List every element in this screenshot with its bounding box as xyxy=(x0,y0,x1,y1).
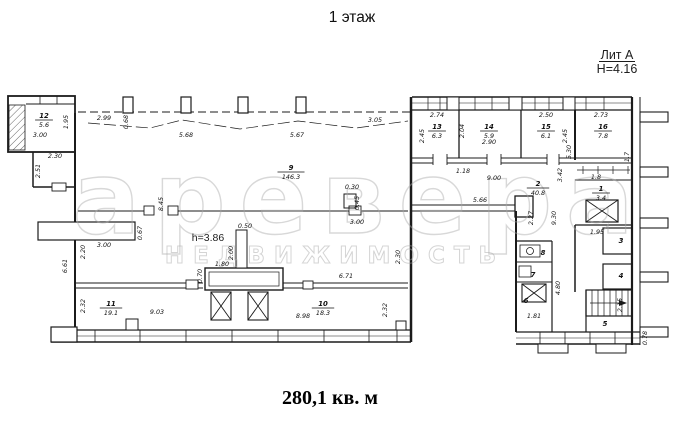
dimension-label: 9.00 xyxy=(487,174,501,182)
vestibule xyxy=(205,268,283,290)
dimension-label: 2.20 xyxy=(79,245,87,259)
room-number: 3 xyxy=(619,237,624,245)
room-number: 9 xyxy=(289,164,294,172)
page-title: 1 этаж xyxy=(329,9,376,26)
dimension-label: 3.05 xyxy=(368,116,382,124)
dimension-label: 1.8 xyxy=(591,173,601,181)
room-area: 40.8 xyxy=(531,189,545,197)
vent-shaft xyxy=(248,292,268,320)
room-4-walls xyxy=(603,264,632,289)
vent-shaft xyxy=(211,292,231,320)
dimension-label: 0.67 xyxy=(136,226,144,240)
room-area: 146.3 xyxy=(282,173,300,181)
dimension-label: 2.04 xyxy=(458,124,466,138)
dimension-label: 2.15 xyxy=(616,298,624,312)
dimension-label: 3.42 xyxy=(556,168,564,182)
room-area: 6.1 xyxy=(541,132,551,140)
dimension-label: 3.00 xyxy=(33,131,47,139)
room-area: 5.9 xyxy=(484,132,494,140)
dimension-label: 2.00 xyxy=(227,246,235,260)
dimension-label: 2.74 xyxy=(430,111,444,119)
room-area: 19.1 xyxy=(104,309,118,317)
dimension-label: 6.71 xyxy=(339,272,353,280)
dimension-label: 0.50 xyxy=(238,222,252,230)
dimension-label: 2.73 xyxy=(594,111,608,119)
dimension-label: 1.95 xyxy=(62,115,70,129)
overhang-dashed-line xyxy=(88,120,408,129)
total-area-label: 280,1 кв. м xyxy=(282,387,378,409)
dimension-label: 8.98 xyxy=(296,312,310,320)
dimension-label: 1.81 xyxy=(527,312,541,320)
room-area: 18.3 xyxy=(316,309,330,317)
dimension-label: 2.32 xyxy=(381,303,389,317)
dimension-label: 5.66 xyxy=(473,196,487,204)
column xyxy=(238,97,248,113)
column xyxy=(123,97,133,113)
entrance-step xyxy=(596,344,626,353)
dimension-label: 6.61 xyxy=(61,259,69,273)
dimension-label: 1.95 xyxy=(590,228,604,236)
dimension-label: 2.32 xyxy=(79,299,87,313)
dimension-label: 0.70 xyxy=(196,269,204,283)
dimension-label: 5.30 xyxy=(565,145,573,159)
room-number: 10 xyxy=(318,300,328,308)
ceiling-height-note: h=3.86 xyxy=(192,232,225,244)
dimension-label: 2.30 xyxy=(394,250,402,264)
dimension-label: 2.30 xyxy=(48,152,62,160)
dimension-label: 3.00 xyxy=(97,241,111,249)
dimension-label: 2.45 xyxy=(561,129,569,143)
dimension-label: 9.30 xyxy=(550,211,558,225)
window-band-south-right xyxy=(516,332,640,353)
room-area: 7.8 xyxy=(598,132,608,140)
room-area: 5.6 xyxy=(39,121,49,129)
dimension-label: 1.7 xyxy=(623,152,631,162)
pilaster xyxy=(640,112,668,122)
dimension-label: 4.80 xyxy=(554,281,562,295)
room-number: 14 xyxy=(484,123,494,131)
dimension-label: 2.51 xyxy=(34,164,42,178)
storey-height-label: H=4.16 xyxy=(597,62,638,76)
room-number: 5 xyxy=(603,320,608,328)
dimension-label: 5.68 xyxy=(179,131,193,139)
room-number: 11 xyxy=(106,300,116,308)
floor-plan: аревера НЕДВИЖИМОСТЬ 1.953.002.990.685.6… xyxy=(0,0,680,424)
room-number: 13 xyxy=(432,123,442,131)
column xyxy=(296,97,306,113)
liter-label: Лит А xyxy=(601,48,634,62)
dimension-label: 1.18 xyxy=(456,167,470,175)
dimension-label: 5.67 xyxy=(290,131,304,139)
dimension-label: 2.45 xyxy=(418,129,426,143)
room-number: 4 xyxy=(619,272,624,280)
dimension-label: 0.78 xyxy=(641,331,649,345)
dimension-label: 0.30 xyxy=(345,183,359,191)
room-number: 1 xyxy=(599,185,604,193)
dimension-label: 0.45 xyxy=(353,196,361,210)
dimension-label: 3.00 xyxy=(350,218,364,226)
entrance-step xyxy=(538,344,568,353)
dimension-label: 2.99 xyxy=(97,114,111,122)
room-number: 12 xyxy=(39,112,49,120)
room-number: 15 xyxy=(541,123,551,131)
room-number: 16 xyxy=(598,123,608,131)
dimension-label: 1.80 xyxy=(215,260,229,268)
window-band-south xyxy=(51,319,411,342)
dimension-label: 0.68 xyxy=(122,115,130,129)
room-number: 2 xyxy=(536,180,541,188)
room-area: 3.4 xyxy=(596,194,606,202)
pilaster xyxy=(640,272,668,282)
stairs xyxy=(586,290,632,316)
dimension-label: 8.45 xyxy=(157,197,165,211)
porch-hatch xyxy=(9,105,25,150)
room-number: 6 xyxy=(524,297,529,305)
sink-icon xyxy=(519,266,531,277)
dimension-label: 2.27 xyxy=(527,211,535,225)
dimension-label: 9.03 xyxy=(150,308,164,316)
dimension-label: 2.50 xyxy=(539,111,553,119)
room-number: 8 xyxy=(541,249,546,257)
room-area: 6.3 xyxy=(432,132,442,140)
room-number: 7 xyxy=(531,271,536,279)
column xyxy=(181,97,191,113)
